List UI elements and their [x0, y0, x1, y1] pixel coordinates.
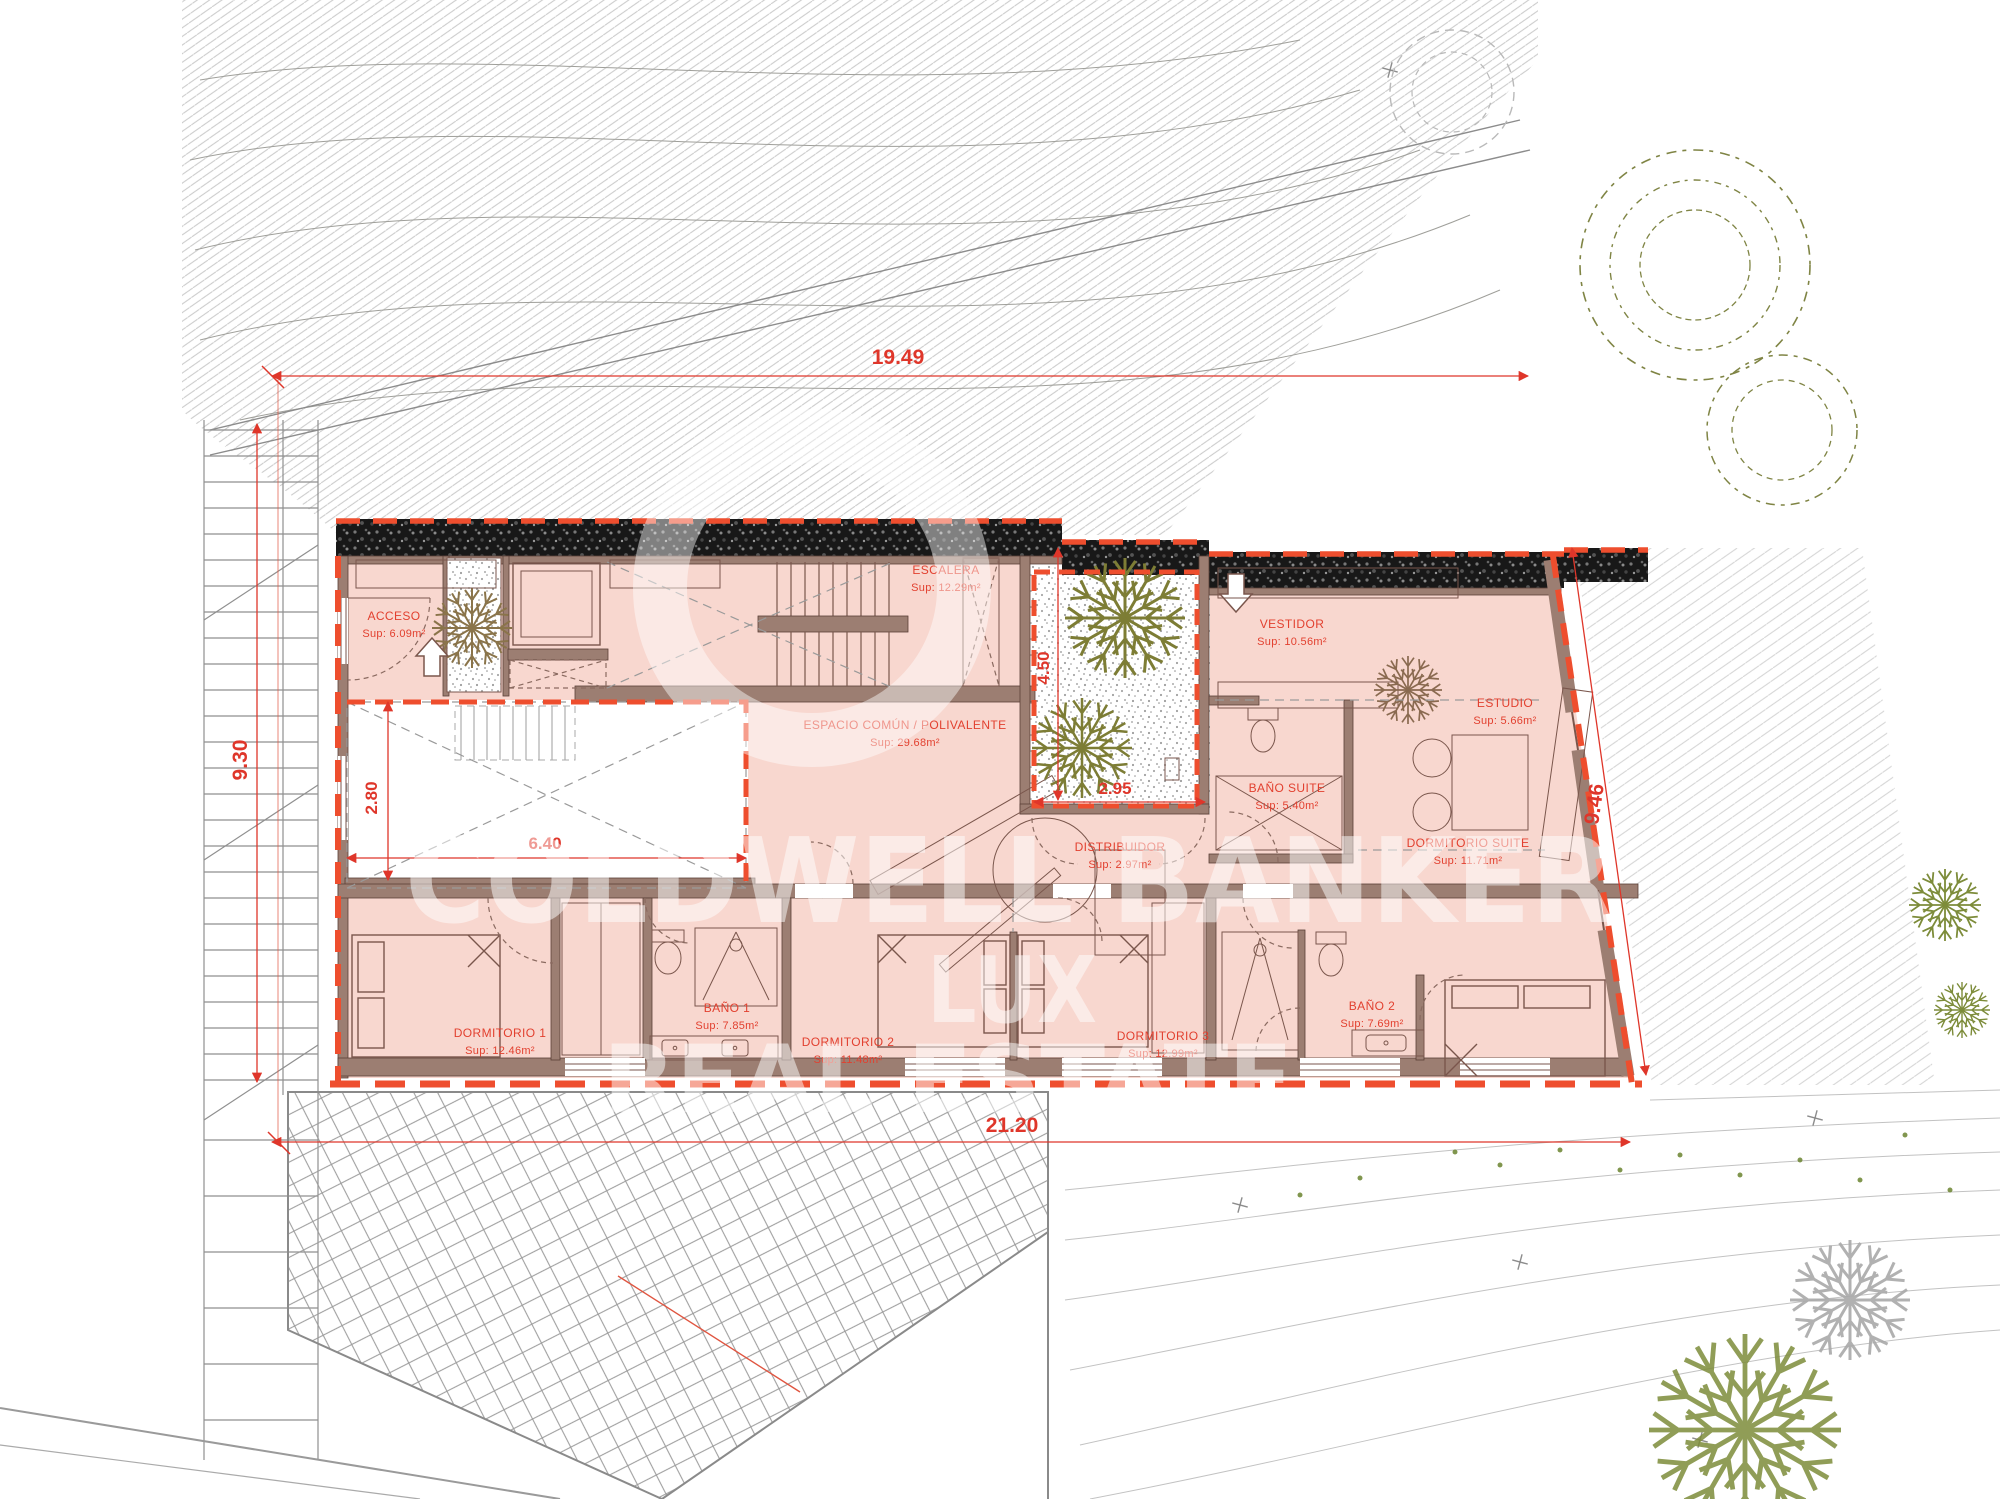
- tree-icon: [1707, 355, 1857, 505]
- tree-icon: [1790, 1240, 1910, 1360]
- dim-label-patio-width: 2.95: [1098, 779, 1131, 798]
- courtyard-patio: [1030, 556, 1210, 814]
- terrace-paving: [288, 1092, 1048, 1499]
- room-name-label: ESTUDIO: [1477, 696, 1533, 710]
- terrain-hatch-east: [1575, 548, 1935, 1085]
- dim-tick: [268, 1132, 290, 1154]
- road-line: [0, 1445, 420, 1499]
- plant-icon: [1934, 982, 1990, 1038]
- tree-icon: [1580, 150, 1810, 380]
- floor-plan-canvas: 19.49 9.30 2.80 6.40 4.50 2.95 9.46 21.2…: [0, 0, 2000, 1499]
- road-line: [0, 1408, 560, 1499]
- room-area-label: Sup: 5.40m²: [1255, 800, 1318, 812]
- tree-icon: [1649, 1334, 1841, 1499]
- room-area-label: Sup: 12.46m²: [465, 1045, 535, 1057]
- dim-label-left: 9.30: [229, 740, 252, 781]
- dim-label-top: 19.49: [872, 346, 925, 369]
- room-area-label: Sup: 6.09m²: [362, 628, 425, 640]
- watermark-realestate-text: REAL ESTATE: [603, 1026, 1293, 1135]
- room-name-label: VESTIDOR: [1260, 617, 1325, 631]
- floor-plan-page: 19.49 9.30 2.80 6.40 4.50 2.95 9.46 21.2…: [0, 0, 2000, 1499]
- dim-label-patio-height: 4.50: [1034, 651, 1053, 684]
- room-area-label: Sup: 10.56m²: [1257, 636, 1327, 648]
- room-area-label: Sup: 5.66m²: [1473, 715, 1536, 727]
- top-wall-band: [1209, 552, 1564, 588]
- room-name-label: BAÑO 2: [1349, 999, 1395, 1013]
- room-name-label: BAÑO 1: [704, 1001, 750, 1015]
- dim-label-void-height: 2.80: [362, 781, 381, 814]
- room-area-label: Sup: 7.69m²: [1340, 1018, 1403, 1030]
- room-name-label: BAÑO SUITE: [1249, 781, 1326, 795]
- room-name-label: ACCESO: [367, 609, 420, 623]
- room-name-label: DORMITORIO 1: [454, 1026, 547, 1040]
- plant-icon: [1909, 869, 1981, 941]
- watermark-brand-text: COLDWELL BANKER: [405, 812, 1615, 950]
- void-stairs-icon: [455, 706, 575, 760]
